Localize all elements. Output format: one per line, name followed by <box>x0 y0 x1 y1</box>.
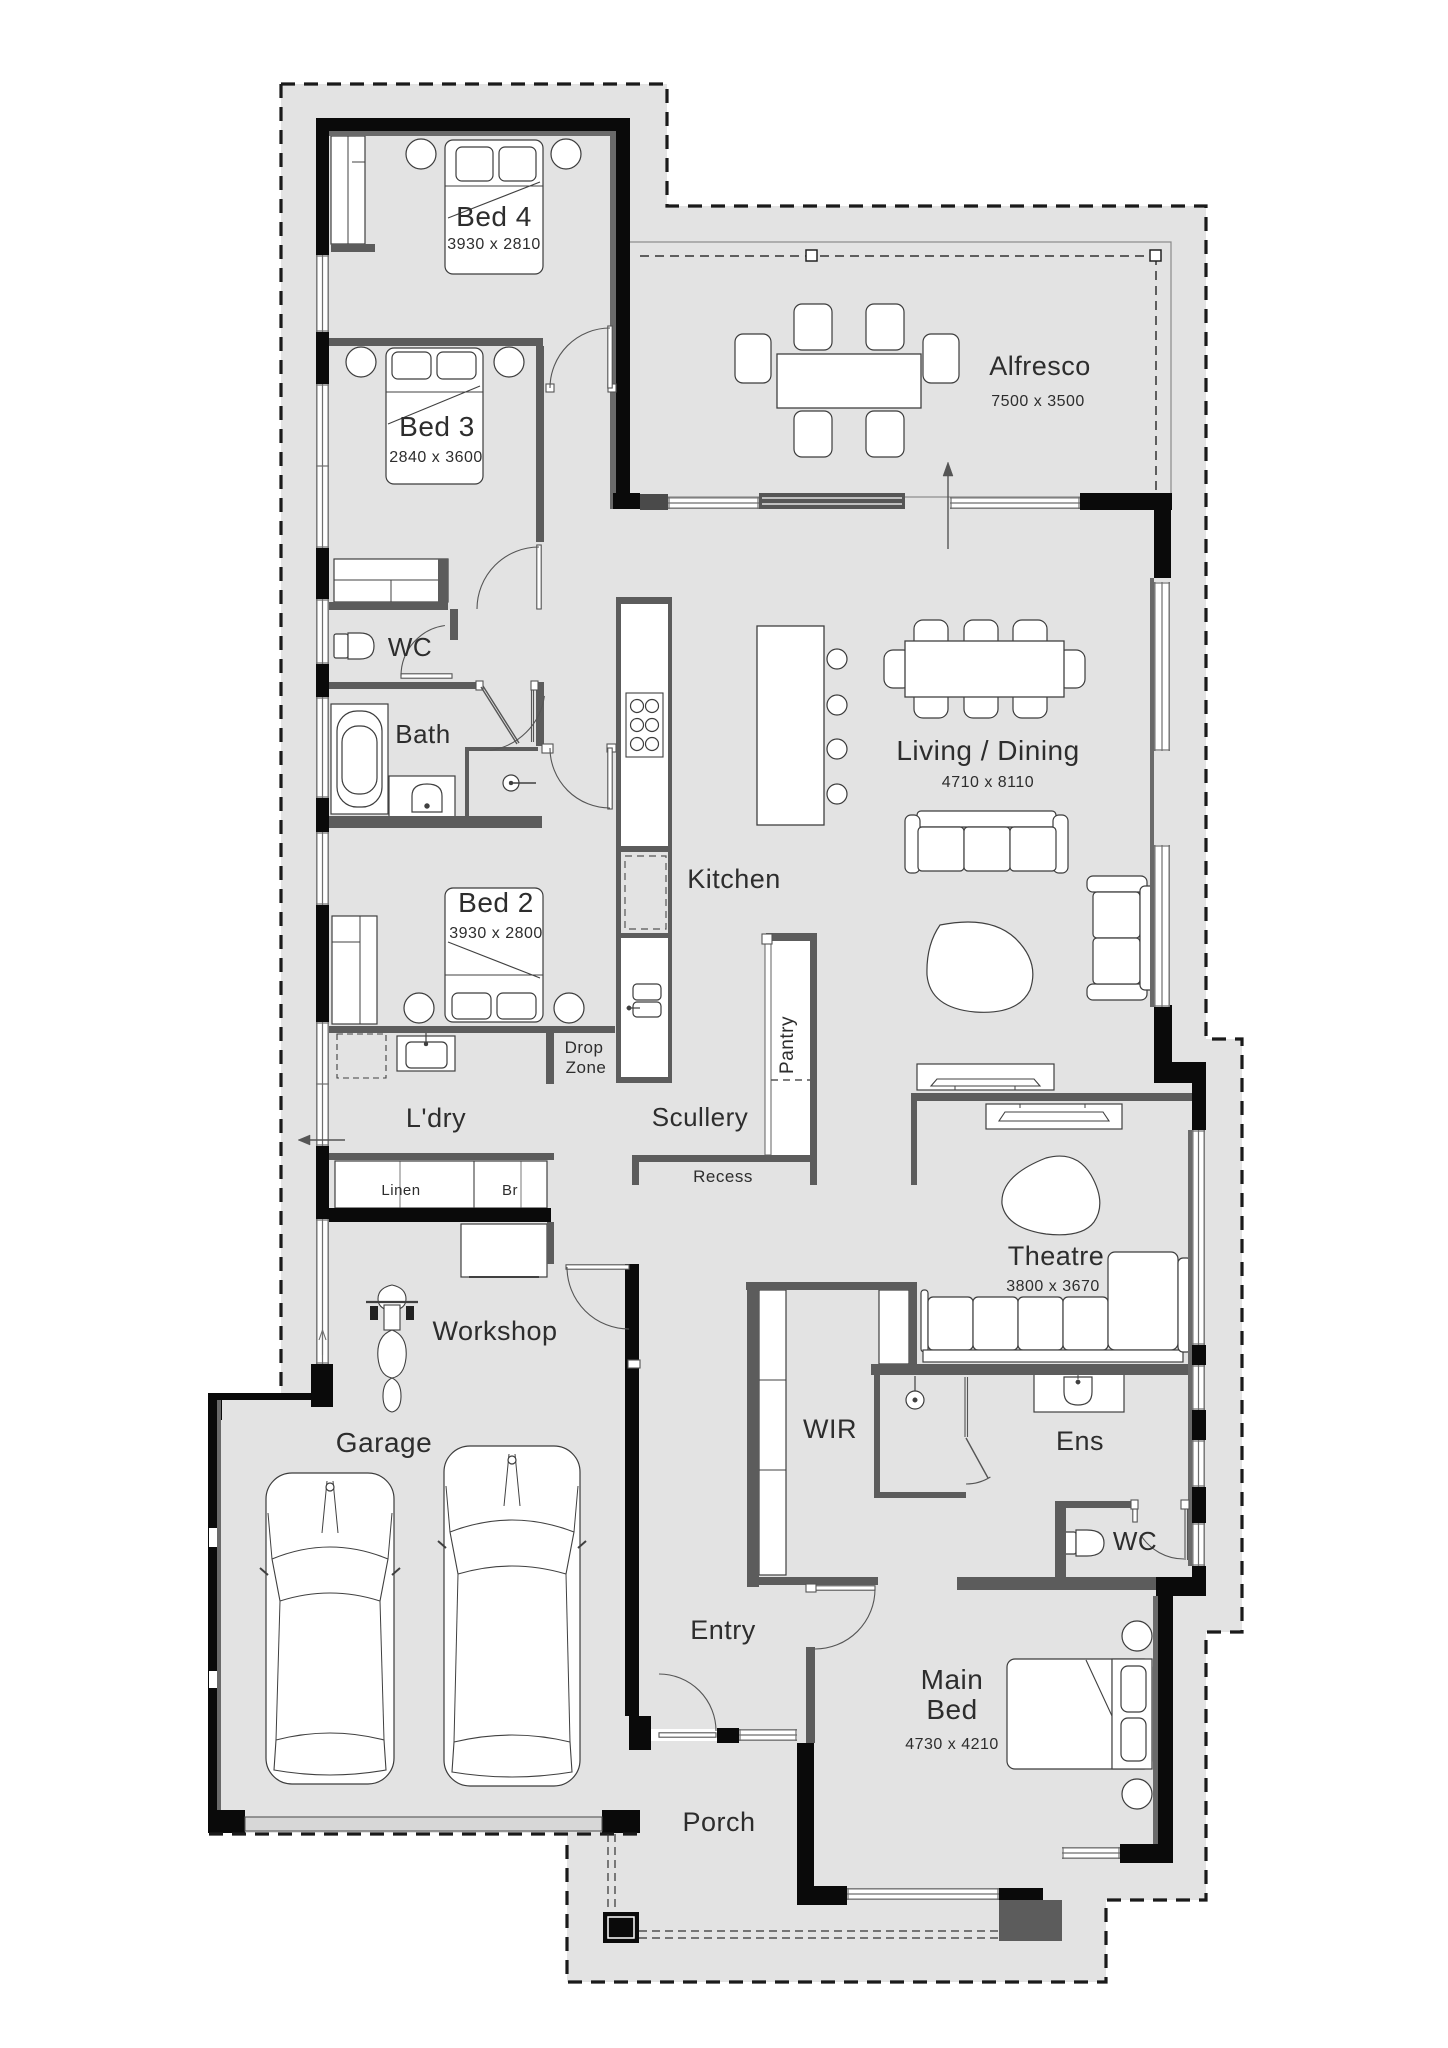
svg-text:7500 x 3500: 7500 x 3500 <box>991 393 1085 410</box>
svg-text:Ens: Ens <box>1056 1426 1104 1456</box>
svg-text:Recess: Recess <box>693 1167 753 1186</box>
svg-text:Workshop: Workshop <box>432 1316 557 1346</box>
svg-text:4710 x 8110: 4710 x 8110 <box>942 774 1034 791</box>
svg-text:Linen: Linen <box>381 1182 420 1199</box>
svg-text:Drop: Drop <box>565 1038 604 1057</box>
svg-text:Garage: Garage <box>336 1427 432 1458</box>
svg-text:2840 x 3600: 2840 x 3600 <box>389 449 483 466</box>
svg-text:WC: WC <box>388 632 432 662</box>
svg-text:Main: Main <box>921 1664 984 1695</box>
svg-text:Porch: Porch <box>682 1807 755 1837</box>
svg-text:Bed 2: Bed 2 <box>458 887 534 918</box>
svg-text:Kitchen: Kitchen <box>687 864 781 894</box>
svg-text:Bath: Bath <box>395 719 451 749</box>
svg-text:Entry: Entry <box>690 1615 756 1645</box>
svg-text:3800 x 3670: 3800 x 3670 <box>1006 1278 1100 1295</box>
svg-text:3930 x 2800: 3930 x 2800 <box>449 925 543 942</box>
svg-text:Pantry: Pantry <box>777 1016 798 1074</box>
svg-text:Bed: Bed <box>926 1694 977 1725</box>
svg-text:WC: WC <box>1113 1526 1157 1556</box>
svg-text:Theatre: Theatre <box>1008 1241 1105 1271</box>
svg-text:4730 x 4210: 4730 x 4210 <box>905 1736 999 1753</box>
svg-text:Br: Br <box>502 1182 518 1199</box>
svg-text:Zone: Zone <box>566 1058 607 1077</box>
svg-text:3930 x 2810: 3930 x 2810 <box>447 236 541 253</box>
svg-text:WIR: WIR <box>803 1414 857 1444</box>
svg-text:Alfresco: Alfresco <box>989 351 1091 381</box>
svg-text:Bed 3: Bed 3 <box>399 411 475 442</box>
svg-text:Bed 4: Bed 4 <box>456 201 532 232</box>
svg-text:Living / Dining: Living / Dining <box>896 735 1079 766</box>
svg-text:Scullery: Scullery <box>652 1102 748 1132</box>
svg-text:L'dry: L'dry <box>406 1103 466 1133</box>
